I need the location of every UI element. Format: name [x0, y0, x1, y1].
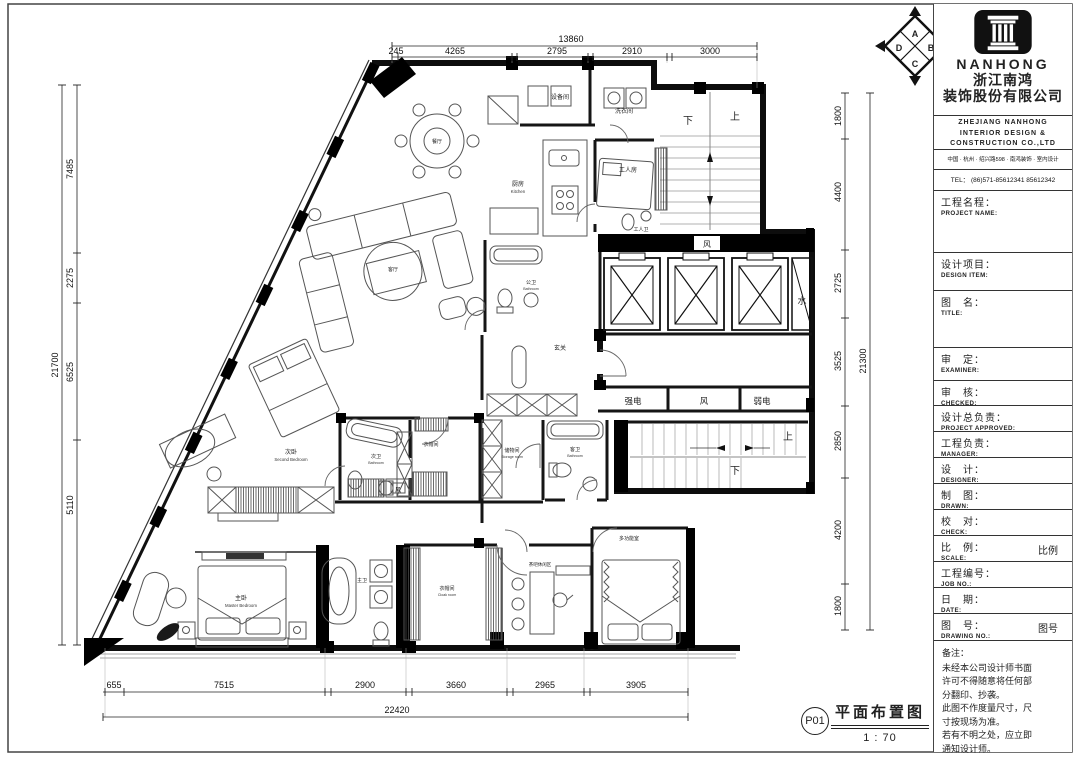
field-label-en: MANAGER: — [941, 451, 1072, 458]
dimension-label: 655 — [106, 680, 121, 690]
title-block: NANHONG 浙江南鸿 装饰股份有限公司 ZHEJIANG NANHONG I… — [933, 4, 1072, 752]
dimension-label: 2850 — [833, 431, 843, 451]
field-label-en: EXAMINER: — [941, 367, 1072, 374]
door-arcs — [325, 125, 628, 575]
room-label: 下 — [730, 466, 740, 477]
field-label-en: DATE: — [941, 607, 1072, 614]
sheet-border — [8, 4, 1072, 752]
field-label-zh: 工程负责： — [941, 435, 1072, 450]
field-label-zh: 审 核： — [941, 384, 1072, 399]
room-label: C — [912, 59, 919, 69]
dimension-label: 2910 — [622, 46, 642, 56]
field-label-en: DRAWN: — [941, 503, 1072, 510]
dimension-label: 3000 — [700, 46, 720, 56]
dimension-label: 4400 — [833, 182, 843, 202]
multifunction-bed — [602, 560, 680, 644]
room-label: D — [896, 43, 903, 53]
room-label: 洗衣间 — [615, 107, 633, 115]
room-label-en: Kitchen — [511, 189, 526, 194]
notes-lines: 未经本公司设计师书面许可不得随意将任何部分翻印、抄袭。此图不作度量尺寸，尺寸按现… — [942, 662, 1064, 757]
dimension-label: 4265 — [445, 46, 465, 56]
storage-closet — [482, 420, 502, 498]
dimension-label: 2965 — [535, 680, 555, 690]
field-label-zh: 工程编号： — [941, 565, 1072, 580]
field-label-en: TITLE: — [941, 310, 1072, 317]
room-label: 设备间 — [551, 93, 569, 101]
brand-tel: TEL： (86)571-85612341 85612342 — [934, 170, 1072, 191]
titleblock-field: 制 图：DRAWN: — [934, 484, 1072, 510]
brand-address: 中国 · 杭州 · 绍兴路598 · 南鸿装饰 · 室内设计 — [934, 150, 1072, 170]
dimension-label: 1800 — [833, 596, 843, 616]
titleblock-field: 工程编号：JOB NO.: — [934, 562, 1072, 588]
room-label: 主卧 — [235, 594, 247, 602]
dimension-label: 2275 — [65, 268, 75, 288]
tea-bar — [512, 566, 590, 634]
room-label: 次卧 — [285, 448, 297, 456]
titleblock-field: 工程负责：MANAGER: — [934, 432, 1072, 458]
titleblock-field: 日 期：DATE: — [934, 588, 1072, 614]
field-label-zh: 校 对： — [941, 513, 1072, 528]
notes-line: 此图不作度量尺寸，尺 — [942, 702, 1064, 716]
titleblock-field: 审 核：CHECKED: — [934, 381, 1072, 406]
field-label-zh: 审 定： — [941, 351, 1072, 366]
staircase-bottom — [630, 424, 806, 488]
brand-name-zh1: 浙江南鸿 — [934, 72, 1072, 88]
dimension-label: 245 — [388, 46, 403, 56]
dimension-label: 13860 — [558, 34, 583, 44]
room-label: 下 — [683, 116, 693, 127]
dimension-label: 3905 — [626, 680, 646, 690]
master-bathroom — [322, 558, 392, 646]
notes-title: 备注： — [942, 647, 1064, 661]
titleblock-field: 校 对：CHECK: — [934, 510, 1072, 536]
field-value: 图号 — [1038, 620, 1058, 635]
room-label: 工人卫 — [633, 227, 648, 233]
field-label-zh: 工程名程： — [941, 194, 1072, 209]
room-label: 主卫 — [357, 577, 367, 584]
room-label-en: Bathroom — [567, 454, 583, 458]
staircase-top — [660, 92, 760, 230]
room-label-en: Cloak room — [438, 593, 456, 597]
dimension-label: 4200 — [833, 520, 843, 540]
titleblock-field: 设计总负责：PROJECT APPROVED: — [934, 406, 1072, 432]
dimension-label: 2795 — [547, 46, 567, 56]
dimension-label: 2725 — [833, 273, 843, 293]
room-label: 厨房 — [512, 180, 524, 188]
room-label: 客厅 — [388, 266, 398, 273]
room-label: 储物间 — [504, 447, 519, 454]
second-bed — [248, 338, 340, 438]
field-label-en: DESIGNER: — [941, 477, 1072, 484]
room-label: 工人房 — [619, 166, 637, 174]
nanhong-column-logo — [974, 10, 1032, 54]
elevator-3 — [732, 253, 788, 330]
titleblock-field: 图 号：DRAWING NO.:图号 — [934, 614, 1072, 641]
room-label: 风 — [700, 396, 709, 406]
room-label: 玄关 — [554, 344, 566, 352]
titleblock-field: 设计项目：DESIGN ITEM: — [934, 253, 1072, 291]
shoe-cabinet — [487, 394, 577, 416]
room-label-en: Second Bedroom — [274, 457, 308, 462]
room-label-en: Bathroom — [523, 287, 539, 291]
room-label-en: Bathroom — [368, 461, 384, 465]
field-label-zh: 日 期： — [941, 591, 1072, 606]
room-label: 衣帽间 — [439, 585, 454, 592]
dimension-label: 7485 — [65, 159, 75, 179]
dimension-label: 7515 — [214, 680, 234, 690]
brand-en-line2: INTERIOR DESIGN & — [934, 129, 1072, 140]
field-label-zh: 设计总负责： — [941, 409, 1072, 424]
notes-line: 通知设计师。 — [942, 743, 1064, 757]
dimension-label: 3660 — [446, 680, 466, 690]
sofa-group — [287, 174, 487, 354]
field-label-en: DESIGN ITEM: — [941, 272, 1072, 279]
dimension-lines: 1386024542652795291030006557515290036602… — [50, 34, 874, 721]
titleblock-fields: 工程名程：PROJECT NAME:设计项目：DESIGN ITEM:图 名：T… — [934, 191, 1072, 641]
floor-plan-drawing: 1386024542652795291030006557515290036602… — [0, 0, 1080, 758]
dimension-label: 6525 — [65, 362, 75, 382]
drawing-title: P01 平面布置图 1 : 70 — [801, 701, 929, 744]
titleblock-field: 图 名：TITLE: — [934, 291, 1072, 348]
elevator-shafts — [604, 253, 812, 330]
brand-name-zh2: 装饰股份有限公司 — [934, 88, 1072, 104]
notes-line: 若有不明之处，应立即 — [942, 729, 1064, 743]
field-label-zh: 制 图： — [941, 487, 1072, 502]
room-label: 弱电 — [753, 396, 771, 406]
room-label: 上 — [730, 111, 740, 123]
field-value: 比例 — [1038, 542, 1058, 557]
field-label-zh: 设计项目： — [941, 256, 1072, 271]
field-label-en: PROJECT APPROVED: — [941, 425, 1072, 432]
room-label: 公卫 — [526, 280, 536, 286]
brand-name-en-full: ZHEJIANG NANHONG INTERIOR DESIGN & CONST… — [934, 116, 1072, 150]
drawing-title-text: 平面布置图 — [831, 701, 929, 729]
brand-header: NANHONG 浙江南鸿 装饰股份有限公司 — [934, 4, 1072, 116]
elevator-1 — [604, 253, 660, 330]
room-label: 客卫 — [570, 446, 580, 453]
room-label-en: Master Bedroom — [225, 603, 257, 608]
room-label-en: Storage room — [501, 455, 523, 459]
dimension-label: 21700 — [50, 352, 60, 377]
room-label: 风 — [703, 240, 711, 249]
field-label-zh: 设 计： — [941, 461, 1072, 476]
room-label: 风 — [395, 487, 401, 494]
room-label: 次卫 — [371, 453, 381, 460]
field-label-en: PROJECT NAME: — [941, 210, 1072, 217]
dimension-label: 3525 — [833, 351, 843, 371]
titleblock-field: 审 定：EXAMINER: — [934, 348, 1072, 381]
walls — [84, 56, 815, 666]
field-label-en: JOB NO.: — [941, 581, 1072, 588]
room-label: 餐厅 — [432, 138, 442, 145]
room-label: 多功能室 — [619, 535, 639, 542]
notes-block: 备注： 未经本公司设计师书面许可不得随意将任何部分翻印、抄袭。此图不作度量尺寸，… — [934, 641, 1072, 762]
dimension-label: 5110 — [65, 495, 75, 514]
notes-line: 寸按现场为准。 — [942, 716, 1064, 730]
furniture — [105, 46, 757, 717]
dimension-label: 1800 — [833, 106, 843, 126]
sheet-number-badge: P01 — [801, 707, 829, 735]
room-label: 衣帽间 — [423, 441, 438, 448]
room-labels: 餐厅客厅设备间洗衣间厨房Kitchen工人房工人卫公卫Bathroom玄关次卧S… — [225, 29, 935, 608]
titleblock-field: 比 例：SCALE:比例 — [934, 536, 1072, 562]
dimension-label: 22420 — [384, 705, 409, 715]
brand-name-en: NANHONG — [934, 56, 1072, 72]
drawing-scale: 1 : 70 — [831, 732, 929, 744]
brand-en-line3: CONSTRUCTION CO.,LTD — [934, 139, 1072, 150]
titleblock-field: 工程名程：PROJECT NAME: — [934, 191, 1072, 253]
notes-line: 许可不得随意将任何部 — [942, 675, 1064, 689]
titleblock-field: 设 计：DESIGNER: — [934, 458, 1072, 484]
elevator-2 — [668, 253, 724, 330]
room-label: 水 — [797, 295, 806, 306]
brand-en-line1: ZHEJIANG NANHONG — [934, 118, 1072, 129]
field-label-zh: 图 名： — [941, 294, 1072, 309]
room-label: 强电 — [624, 396, 642, 406]
notes-line: 分翻印、抄袭。 — [942, 689, 1064, 703]
field-label-en: CHECK: — [941, 529, 1072, 536]
foyer-runner — [512, 346, 526, 388]
room-label: 茶吧休闲区 — [529, 561, 552, 568]
room-label: A — [912, 29, 919, 39]
dimension-label: 2900 — [355, 680, 375, 690]
dimension-label: 21300 — [858, 348, 868, 373]
room-label: 上 — [783, 431, 793, 443]
notes-line: 未经本公司设计师书面 — [942, 662, 1064, 676]
servant-bed — [596, 158, 653, 210]
